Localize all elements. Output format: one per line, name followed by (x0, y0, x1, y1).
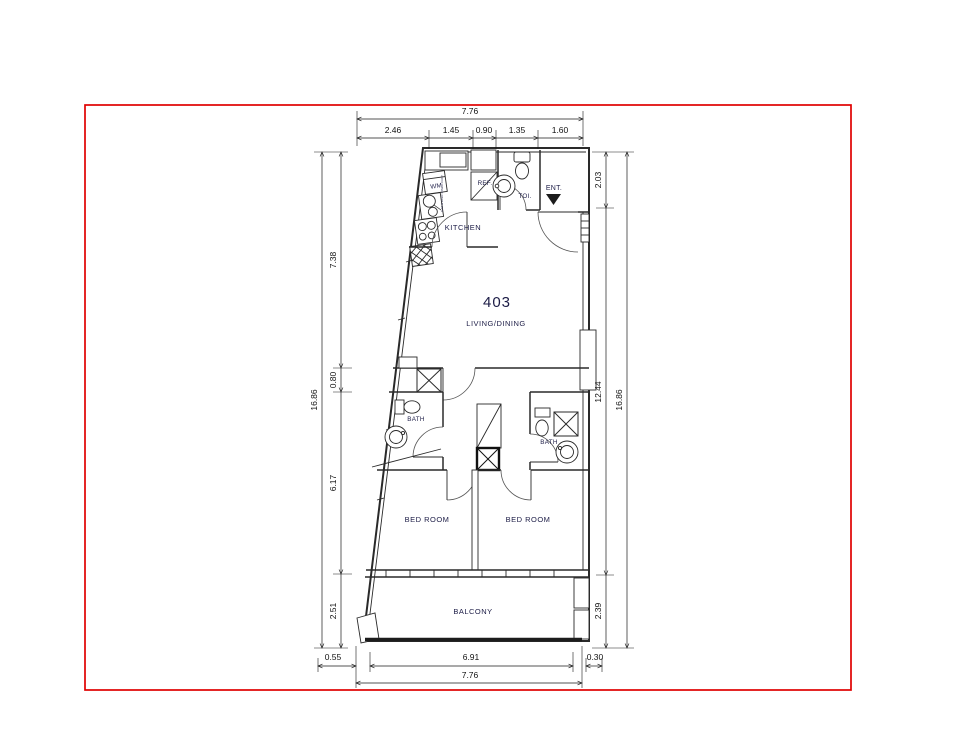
dim-bottom-right-offset: 0.30 (587, 652, 604, 662)
unit-number: 403 (483, 294, 511, 311)
wc-bowl (536, 420, 548, 436)
duct-shaft (417, 369, 441, 392)
balcony-column (574, 578, 589, 608)
wc-bowl (516, 163, 529, 179)
wc-tank (514, 152, 530, 162)
bath-left-label: BATH (407, 416, 425, 423)
dim-left-seg-4: 2.51 (328, 602, 338, 619)
bath-right: BATH (530, 392, 589, 470)
balcony-label: BALCONY (453, 607, 492, 616)
kitchen-label: KITCHEN (445, 223, 481, 232)
refrigerator-label: REF. (478, 180, 493, 187)
window-band (365, 570, 589, 577)
duct-shaft (554, 412, 578, 436)
sheet-border (85, 105, 851, 690)
bedroom-left-label: BED ROOM (405, 515, 450, 524)
hall-shafts (417, 369, 501, 470)
dimensions-top: 7.76 2.46 1.45 0.90 1.35 1.60 (357, 106, 583, 149)
dim-left-total: 16.86 (309, 389, 319, 411)
dim-top-total: 7.76 (462, 106, 479, 116)
dim-top-seg-5: 1.60 (552, 125, 569, 135)
entrance-arrow-icon (546, 194, 561, 205)
dim-left-seg-2: 0.80 (328, 371, 338, 388)
balcony: BALCONY (357, 578, 589, 643)
riser-note: GAS & ELEC RISER DUCT (440, 175, 444, 212)
dim-left-seg-1: 7.38 (328, 251, 338, 268)
dimensions-left: 16.86 7.38 0.80 6.17 2.51 (309, 152, 352, 648)
bedroom-divider-wall (472, 470, 478, 570)
dimensions-right: 2.03 12.44 2.39 16.86 (592, 152, 634, 648)
bedroom-right-label: BED ROOM (506, 515, 551, 524)
bath-right-label: BATH (540, 439, 558, 446)
wc-bowl (404, 401, 420, 413)
bedrooms: BED ROOM BED ROOM (365, 470, 589, 577)
dim-bottom-total: 7.76 (462, 670, 479, 680)
dim-right-seg-2: 12.44 (593, 381, 603, 403)
ref-niche: REF. (471, 150, 497, 200)
entrance-label: ENT. (546, 185, 562, 192)
dim-top-seg-3: 0.90 (476, 125, 493, 135)
dim-right-seg-3: 2.39 (593, 602, 603, 619)
dim-top-seg-4: 1.35 (509, 125, 526, 135)
bath-left: BATH (372, 392, 443, 470)
dim-left-seg-3: 6.17 (328, 474, 338, 491)
wc-tank (535, 408, 550, 417)
balcony-column (574, 610, 589, 639)
dim-bottom-inner: 6.91 (463, 652, 480, 662)
dimensions-bottom: 0.55 6.91 0.30 7.76 (318, 646, 604, 688)
toilet-label: TOI. (518, 193, 531, 200)
toilet-room: TOI. (493, 150, 540, 210)
duct-shaft-dark (477, 448, 499, 470)
floor-plan-sheet: WM GAS & ELEC RISER DUCT KITCHEN (0, 0, 980, 752)
dim-bottom-left-offset: 0.55 (325, 652, 342, 662)
wc-tank (395, 400, 404, 414)
window-mullion (580, 330, 596, 390)
living-label: LIVING/DINING (466, 319, 525, 328)
dim-right-seg-1: 2.03 (593, 171, 603, 188)
dim-top-seg-1: 2.46 (385, 125, 402, 135)
entrance: ENT. (538, 185, 589, 252)
dim-right-total: 16.86 (614, 389, 624, 411)
dim-top-seg-2: 1.45 (443, 125, 460, 135)
